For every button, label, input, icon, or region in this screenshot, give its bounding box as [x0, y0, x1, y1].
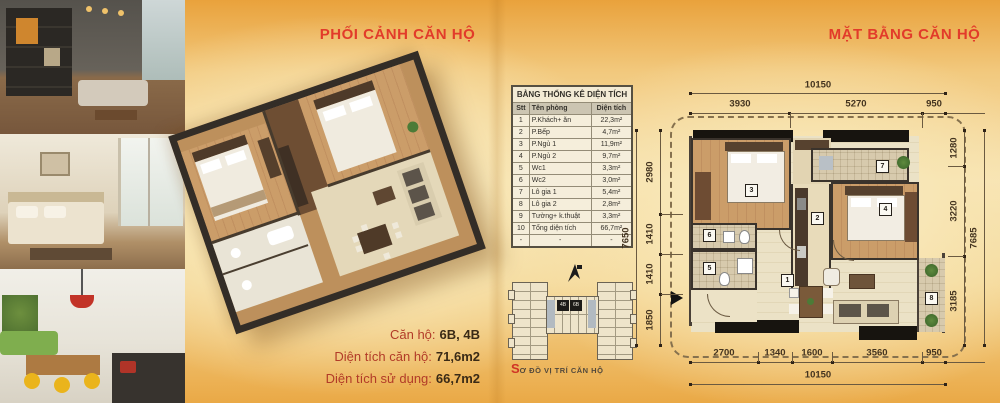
dim-line-right-overall	[984, 130, 985, 346]
cell-area: 3,3m²	[591, 163, 632, 175]
interior-photo-bedroom	[0, 134, 185, 269]
window	[142, 0, 185, 80]
wall-bottom-right	[859, 326, 917, 340]
cell-area: 3,3m²	[591, 211, 632, 223]
cell-stt: 10	[512, 223, 529, 235]
cell-room: Wc2	[529, 175, 591, 187]
bed2-pillow	[851, 198, 871, 207]
table-row: 4P.Ngủ 29,7m²	[512, 151, 632, 163]
sofa-cushion	[839, 304, 861, 317]
table-row: 9Tường+ k.thuật3,3m²	[512, 211, 632, 223]
cell-area: 11,9m²	[591, 139, 632, 151]
building-left-wing	[512, 282, 548, 360]
dim-tick	[922, 352, 923, 362]
cell-stt: 4	[512, 151, 529, 163]
dim-left-seg: 2980	[645, 161, 656, 182]
entry-hall	[691, 290, 757, 322]
building-right-wing	[597, 282, 633, 360]
balcony2-plant-bottom	[925, 314, 938, 327]
brochure-spread: PHỐI CẢNH CĂN HỘ	[0, 0, 1000, 403]
dim-right-seg: 1280	[949, 137, 960, 158]
bench	[30, 248, 112, 260]
cell-area: 2,8m²	[591, 199, 632, 211]
info-line-unit: Căn hộ:6B, 4B	[250, 324, 480, 346]
artwork-orange	[16, 18, 38, 44]
dim-top-overall: 10150	[805, 80, 831, 91]
dim-line-bottom-segments	[690, 362, 985, 363]
dim-line-right-segments	[964, 130, 965, 346]
dim-right-seg: 3185	[949, 290, 960, 311]
info-value: 71,6m2	[436, 349, 480, 364]
cell-stt: 7	[512, 187, 529, 199]
location-caption: SƠ ĐỒ VỊ TRÍ CĂN HỘ	[511, 360, 603, 378]
table-row-empty: ---	[512, 235, 632, 248]
dim-ext	[922, 113, 923, 128]
dim-dot	[689, 383, 692, 386]
center-gray-left	[547, 300, 555, 328]
dim-dot	[944, 361, 947, 364]
cell-room: -	[529, 235, 591, 248]
cell-room: P.Khách+ ăn	[529, 115, 591, 127]
dim-line-left-segments	[660, 130, 661, 346]
dim-dot	[963, 129, 966, 132]
wing-tab	[508, 290, 515, 300]
info-label: Diện tích căn hộ:	[334, 349, 432, 364]
info-line-usable: Diện tích sử dụng:66,7m2	[250, 368, 480, 390]
hedge	[0, 331, 58, 355]
cell-area: 5,4m²	[591, 187, 632, 199]
dim-left-seg: 1410	[645, 263, 656, 284]
perspective-title: PHỐI CẢNH CĂN HỘ	[305, 26, 490, 43]
table-header-row: Stt Tên phòng Diện tích	[512, 103, 632, 115]
dim-right-overall: 7685	[969, 227, 980, 248]
table-plant	[807, 298, 814, 305]
wing-midline	[530, 283, 531, 359]
toilet	[719, 272, 730, 286]
dim-dot	[689, 92, 692, 95]
wall-art	[40, 152, 70, 176]
highlight-unit-6b: 6B	[570, 300, 582, 311]
dim-bottom-overall: 10150	[805, 370, 831, 381]
wall-top-right	[823, 130, 909, 142]
caption-text: Ơ ĐỒ VỊ TRÍ CĂN HỘ	[520, 366, 604, 375]
info-value: 66,7m2	[436, 371, 480, 386]
pillow	[16, 206, 38, 218]
dim-dot	[944, 92, 947, 95]
table-row: 1P.Khách+ ăn22,3m²	[512, 115, 632, 127]
table-row: 8Lô gia 22,8m²	[512, 199, 632, 211]
balcony-plant	[897, 156, 910, 169]
toilet	[739, 230, 750, 244]
dim-dot	[659, 344, 662, 347]
info-value: 6B, 4B	[440, 327, 480, 342]
dim-ext	[790, 113, 791, 128]
floor-plan-title: MẶT BẰNG CĂN HỘ	[812, 26, 997, 43]
dim-dot	[635, 129, 638, 132]
table-title: BẢNG THỐNG KÊ DIỆN TÍCH	[512, 86, 632, 103]
red-cushion	[120, 361, 136, 373]
info-line-area: Diện tích căn hộ:71,6m2	[250, 346, 480, 368]
wardrobe2	[905, 192, 917, 242]
dim-line-bottom-overall	[690, 384, 946, 385]
col-stt: Stt	[512, 103, 529, 115]
bed2-headboard	[845, 186, 903, 195]
cell-room: P.Ngủ 1	[529, 139, 591, 151]
entry-door-arc	[707, 294, 730, 317]
cell-stt: 1	[512, 115, 529, 127]
dim-dot	[983, 344, 986, 347]
dim-bottom-seg: 950	[926, 348, 942, 359]
apartment-3d-plan	[168, 51, 486, 335]
room-label-2: 2	[811, 212, 824, 225]
dim-top-seg: 3930	[729, 99, 750, 110]
info-label: Căn hộ:	[390, 327, 436, 342]
sink	[723, 231, 735, 243]
cell-room: Lô gia 1	[529, 187, 591, 199]
dim-bottom-seg: 2700	[713, 348, 734, 359]
table-row: 3P.Ngủ 111,9m²	[512, 139, 632, 151]
dim-tick	[792, 352, 793, 362]
room-label-7: 7	[876, 160, 889, 173]
balcony1-room	[811, 148, 909, 182]
caption-initial: S	[511, 361, 520, 376]
wc2-room	[691, 223, 757, 250]
dim-tick	[758, 352, 759, 362]
col-area: Diện tích	[591, 103, 632, 115]
info-label: Diện tích sử dụng:	[326, 371, 432, 386]
table-row-total: 10Tổng diện tích66,7m²	[512, 223, 632, 235]
wc1-room	[691, 250, 757, 290]
dim-ext	[948, 256, 964, 257]
cell-stt: 2	[512, 127, 529, 139]
bedroom1-room	[691, 138, 791, 230]
interior-photo-kitchen	[0, 269, 185, 403]
pendant-lamp	[70, 295, 94, 308]
north-arrow-icon	[566, 264, 584, 286]
dim-ext	[661, 214, 683, 215]
table-title-row: BẢNG THỐNG KÊ DIỆN TÍCH	[512, 86, 632, 103]
ceiling-light	[86, 6, 92, 12]
floor-plan-2d: 3 7 4 6 5	[683, 128, 948, 346]
room-label-8: 8	[925, 292, 938, 305]
dining-table	[799, 286, 823, 318]
dim-top-seg: 950	[926, 99, 942, 110]
sofa	[78, 80, 148, 106]
wing-tab	[508, 314, 515, 324]
wing-midline	[615, 283, 616, 359]
cell-stt: 3	[512, 139, 529, 151]
bed1-headboard	[725, 142, 783, 151]
table-row: 5Wc13,3m²	[512, 163, 632, 175]
room-label-5: 5	[703, 262, 716, 275]
cell-area: 4,7m²	[591, 127, 632, 139]
dim-dot	[689, 361, 692, 364]
dim-line-top-overall	[690, 93, 946, 94]
dim-bottom-seg: 1340	[764, 348, 785, 359]
dining-chairs	[789, 288, 799, 298]
dim-right-seg: 3220	[949, 200, 960, 221]
bed1-pillow	[731, 154, 751, 163]
dim-dot	[963, 344, 966, 347]
cell-stt: -	[512, 235, 529, 248]
dim-dot	[659, 129, 662, 132]
dim-line-top-segments	[690, 113, 985, 114]
dining-table	[26, 355, 100, 375]
window-frame	[148, 138, 150, 226]
coffee-table	[849, 274, 875, 289]
dim-ext	[661, 254, 683, 255]
cell-room: Tổng diện tích	[529, 223, 591, 235]
pendant-cord	[81, 269, 83, 295]
area-statistics-table: BẢNG THỐNG KÊ DIỆN TÍCH Stt Tên phòng Di…	[511, 85, 633, 248]
interior-photo-living	[0, 0, 185, 134]
table-row: 6Wc23,0m²	[512, 175, 632, 187]
dim-bottom-seg: 3560	[866, 348, 887, 359]
cell-stt: 9	[512, 211, 529, 223]
armchair	[823, 268, 840, 286]
cell-room: Lô gia 2	[529, 199, 591, 211]
cell-stt: 6	[512, 175, 529, 187]
room-label-4: 4	[879, 203, 892, 216]
cell-area: 22,3m²	[591, 115, 632, 127]
apartment-info: Căn hộ:6B, 4B Diện tích căn hộ:71,6m2 Di…	[250, 324, 480, 390]
shelf-decor	[44, 48, 60, 66]
center-gray-right	[588, 300, 596, 328]
coffee-table	[95, 110, 137, 120]
table-row: 7Lô gia 15,4m²	[512, 187, 632, 199]
cell-room: P.Ngủ 2	[529, 151, 591, 163]
dim-dot	[689, 112, 692, 115]
dim-tick	[832, 352, 833, 362]
dim-left-seg: 1410	[645, 223, 656, 244]
table-row: 2P.Bếp4,7m²	[512, 127, 632, 139]
cell-room: Wc1	[529, 163, 591, 175]
dim-bottom-seg: 1600	[801, 348, 822, 359]
cell-stt: 8	[512, 199, 529, 211]
mat	[819, 156, 833, 170]
wardrobe1	[695, 172, 711, 220]
dim-dot	[944, 112, 947, 115]
dim-top-seg: 5270	[845, 99, 866, 110]
balcony2-plant-top	[925, 264, 938, 277]
dim-left-seg: 1850	[645, 309, 656, 330]
stove	[797, 198, 806, 210]
dim-ext	[948, 166, 964, 167]
room-label-3: 3	[745, 184, 758, 197]
dim-left-overall: 7650	[621, 227, 632, 248]
dim-dot	[944, 383, 947, 386]
room-label-1: 1	[781, 274, 794, 287]
dim-dot	[983, 129, 986, 132]
cell-area: 9,7m²	[591, 151, 632, 163]
dim-ext	[661, 294, 683, 295]
yellow-chair	[24, 373, 40, 389]
cell-room: Tường+ k.thuật	[529, 211, 591, 223]
dim-line-left-overall	[636, 130, 637, 346]
cell-room: P.Bếp	[529, 127, 591, 139]
shower	[737, 258, 753, 274]
cell-area: 3,0m²	[591, 175, 632, 187]
col-room: Tên phòng	[529, 103, 591, 115]
dim-dot	[635, 344, 638, 347]
wing-tab	[508, 338, 515, 348]
room-label-6: 6	[703, 229, 716, 242]
cell-stt: 5	[512, 163, 529, 175]
page-fold	[488, 0, 506, 403]
highlight-unit-4b: 4B	[557, 300, 569, 311]
